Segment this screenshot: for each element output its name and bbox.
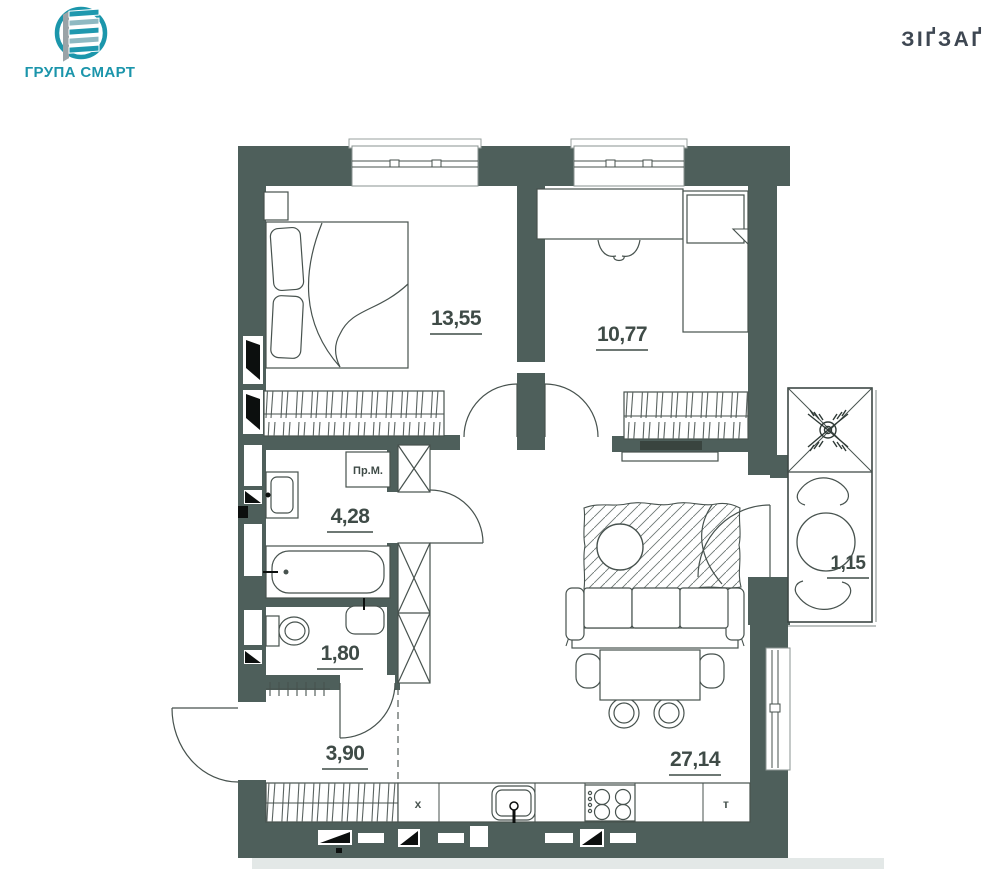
dining-set <box>576 650 724 728</box>
floor-plan: Пр.М. x <box>0 0 1000 871</box>
bath-drain <box>284 570 289 575</box>
window-top-2 <box>571 139 687 186</box>
pillow <box>270 227 304 291</box>
wardrobe-bedroom-2 <box>624 392 748 439</box>
window-top-1 <box>349 139 481 186</box>
single-bed <box>683 191 748 332</box>
bathroom-fixtures: Пр.М. <box>263 452 390 598</box>
wardrobe-bedroom-1 <box>264 391 444 436</box>
sofa-cushion <box>680 588 728 628</box>
coffee-table <box>597 524 643 570</box>
area-label-balcony: 1,15 <box>831 553 867 574</box>
door-bathroom <box>430 490 483 543</box>
corner-sink <box>346 606 384 634</box>
desk <box>537 189 683 239</box>
tap <box>266 493 271 498</box>
window-right <box>766 648 790 770</box>
boiler-label: т <box>723 797 729 811</box>
sofa-cushion <box>584 588 632 628</box>
area-label-hallway: 3,90 <box>326 742 365 765</box>
area-label-wc: 1,80 <box>321 642 360 665</box>
faucet <box>510 802 518 810</box>
area-label-bathroom: 4,28 <box>331 505 371 528</box>
door-bedroom-2 <box>545 384 598 437</box>
living-furniture <box>566 503 744 728</box>
door-entrance <box>172 708 238 782</box>
door-bedroom-1 <box>464 384 517 437</box>
sofa-armrest <box>726 588 744 640</box>
toilet-tank <box>266 616 279 646</box>
area-label-bedroom-2: 10,77 <box>597 323 647 346</box>
desk-chair <box>598 240 640 261</box>
dining-chair <box>576 654 601 688</box>
sofa-cushion <box>632 588 680 628</box>
tv <box>640 441 702 450</box>
dining-table <box>600 650 700 700</box>
sofa <box>566 588 744 648</box>
kitchen-counter: x т <box>398 783 750 823</box>
vent-shaft-column <box>398 445 430 683</box>
balcony <box>788 388 876 626</box>
ground-shadow <box>252 858 884 869</box>
sofa-armrest <box>566 588 584 640</box>
stove <box>585 785 635 821</box>
hallway-closet <box>266 783 398 822</box>
pillow <box>270 295 303 358</box>
fridge-label: x <box>415 797 422 811</box>
dining-chair <box>699 654 724 688</box>
bedroom-1-furniture <box>264 192 444 436</box>
tv-stand <box>622 452 718 461</box>
door-wc <box>340 683 395 738</box>
area-label-bedroom-1: 13,55 <box>431 307 482 330</box>
area-label-kitchen-living: 27,14 <box>670 748 721 771</box>
nightstand <box>264 192 288 220</box>
washing-machine-label: Пр.М. <box>353 465 383 477</box>
